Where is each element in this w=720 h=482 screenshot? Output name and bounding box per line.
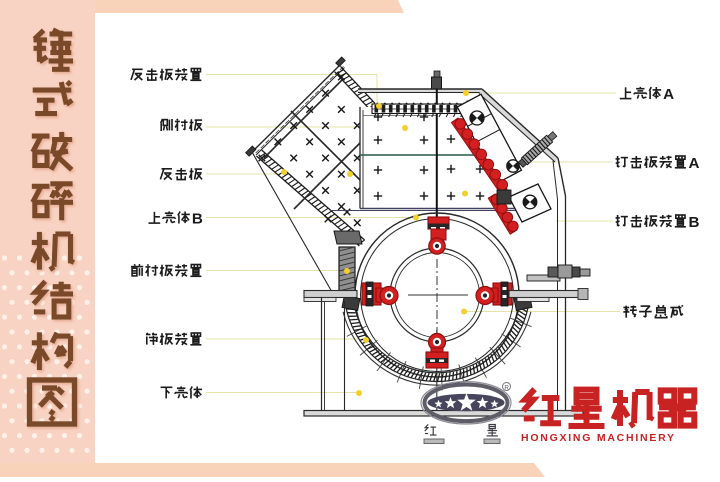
svg-text:B: B [192,211,203,228]
svg-text:B: B [689,214,700,231]
svg-text:A: A [689,155,700,172]
svg-text:R: R [504,385,509,392]
svg-text:HONGXING MACHINERY: HONGXING MACHINERY [521,432,676,444]
svg-text:A: A [663,86,674,103]
